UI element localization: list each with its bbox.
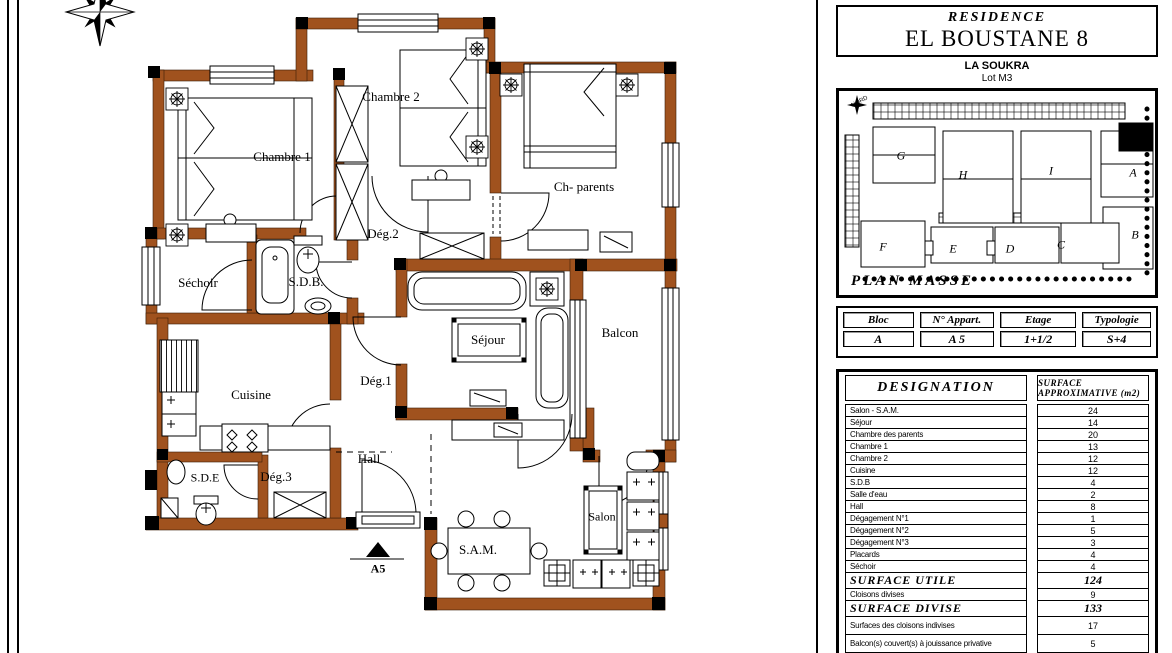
room-label-sdb: S.D.B. [288, 274, 323, 290]
plan-masse-title: PLAN MASSE [851, 273, 974, 290]
residence-label: RESIDENCE [838, 10, 1156, 26]
site-block-i: I [1049, 164, 1053, 179]
apartment-info-table: Bloc N° Appart. Etage Typologie A A 5 1+… [836, 306, 1158, 358]
site-plan-drawing [839, 91, 1155, 295]
room-label-chambre2: Chambre 2 [362, 89, 419, 105]
title-block: RESIDENCE EL BOUSTANE 8 [836, 5, 1158, 57]
site-block-h: H [959, 168, 968, 183]
site-block-c: C [1057, 238, 1065, 253]
designation-header: DESIGNATION [845, 375, 1027, 401]
designation-table: DESIGNATION SURFACE APPROXIMATIVE (m2) S… [836, 369, 1158, 653]
room-label-sejour: Séjour [471, 332, 505, 348]
apt-header-typologie: Typologie [1082, 312, 1151, 328]
site-block-g: G [897, 149, 906, 164]
room-label-salon: Salon [588, 510, 615, 525]
apt-value-etage: 1+1/2 [1000, 331, 1076, 347]
drawing-sheet: Chambre 1 Chambre 2 Ch- parents Dég.2 Sé… [0, 0, 1172, 653]
room-label-deg1: Dég.1 [360, 373, 391, 389]
site-block-d: D [1006, 242, 1015, 257]
apt-value-bloc: A [843, 331, 914, 347]
apt-header-etage: Etage [1000, 312, 1076, 328]
entrance-arrow-icon [350, 542, 404, 559]
room-label-cuisine: Cuisine [231, 387, 271, 403]
room-label-balcon: Balcon [602, 325, 639, 341]
plan-masse-box: NORD G H I A B F E D C PLAN MASSE [836, 88, 1158, 298]
room-label-ch-parents: Ch- parents [554, 179, 614, 195]
site-block-b: B [1131, 228, 1138, 243]
apt-header-bloc: Bloc [843, 312, 914, 328]
room-label-deg3: Dég.3 [260, 469, 291, 485]
room-label-hall: Hall [358, 451, 380, 467]
apt-header-appart: N° Appart. [920, 312, 994, 328]
info-panel: RESIDENCE EL BOUSTANE 8 LA SOUKRA Lot M3 [820, 0, 1172, 653]
apt-value-typologie: S+4 [1082, 331, 1151, 347]
table-row-surface-divise: SURFACE DIVISE133 [845, 600, 1149, 617]
room-label-sde: S.D.E [191, 471, 220, 486]
room-label-sam: S.A.M. [459, 542, 497, 558]
table-row-surface-utile: SURFACE UTILE124 [845, 572, 1149, 589]
room-label-chambre1: Chambre 1 [253, 149, 310, 165]
lot-label: Lot M3 [836, 73, 1158, 84]
compass-rose-icon [66, 0, 134, 46]
table-row: Surfaces des cloisons indivises17 [845, 616, 1149, 635]
surface-header: SURFACE APPROXIMATIVE (m2) [1037, 375, 1149, 401]
panel-frame-line [816, 0, 818, 653]
site-block-f: F [879, 240, 886, 255]
site-block-e: E [949, 242, 956, 257]
site-block-a: A [1129, 166, 1136, 181]
entrance-section-label: A5 [371, 562, 386, 577]
room-label-deg2: Dég.2 [367, 226, 398, 242]
room-label-sechoir: Séchoir [178, 275, 218, 291]
table-row: Balcon(s) couvert(s) à jouissance privat… [845, 634, 1149, 653]
apt-value-appart: A 5 [920, 331, 994, 347]
project-title: EL BOUSTANE 8 [838, 26, 1156, 52]
location-label: LA SOUKRA [836, 60, 1158, 72]
